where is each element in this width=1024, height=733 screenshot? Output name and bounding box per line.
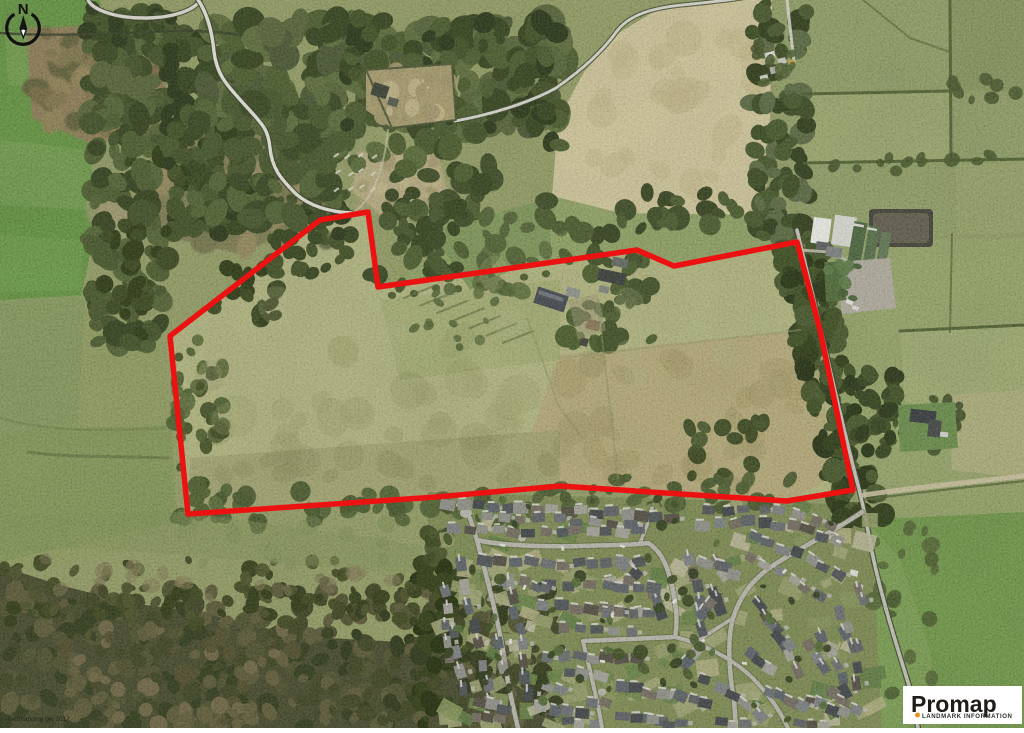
svg-text:N: N <box>18 1 29 18</box>
svg-text:LANDMARK INFORMATION: LANDMARK INFORMATION <box>922 713 1012 720</box>
svg-text:Getmapping plc 2017.: Getmapping plc 2017. <box>8 716 72 723</box>
